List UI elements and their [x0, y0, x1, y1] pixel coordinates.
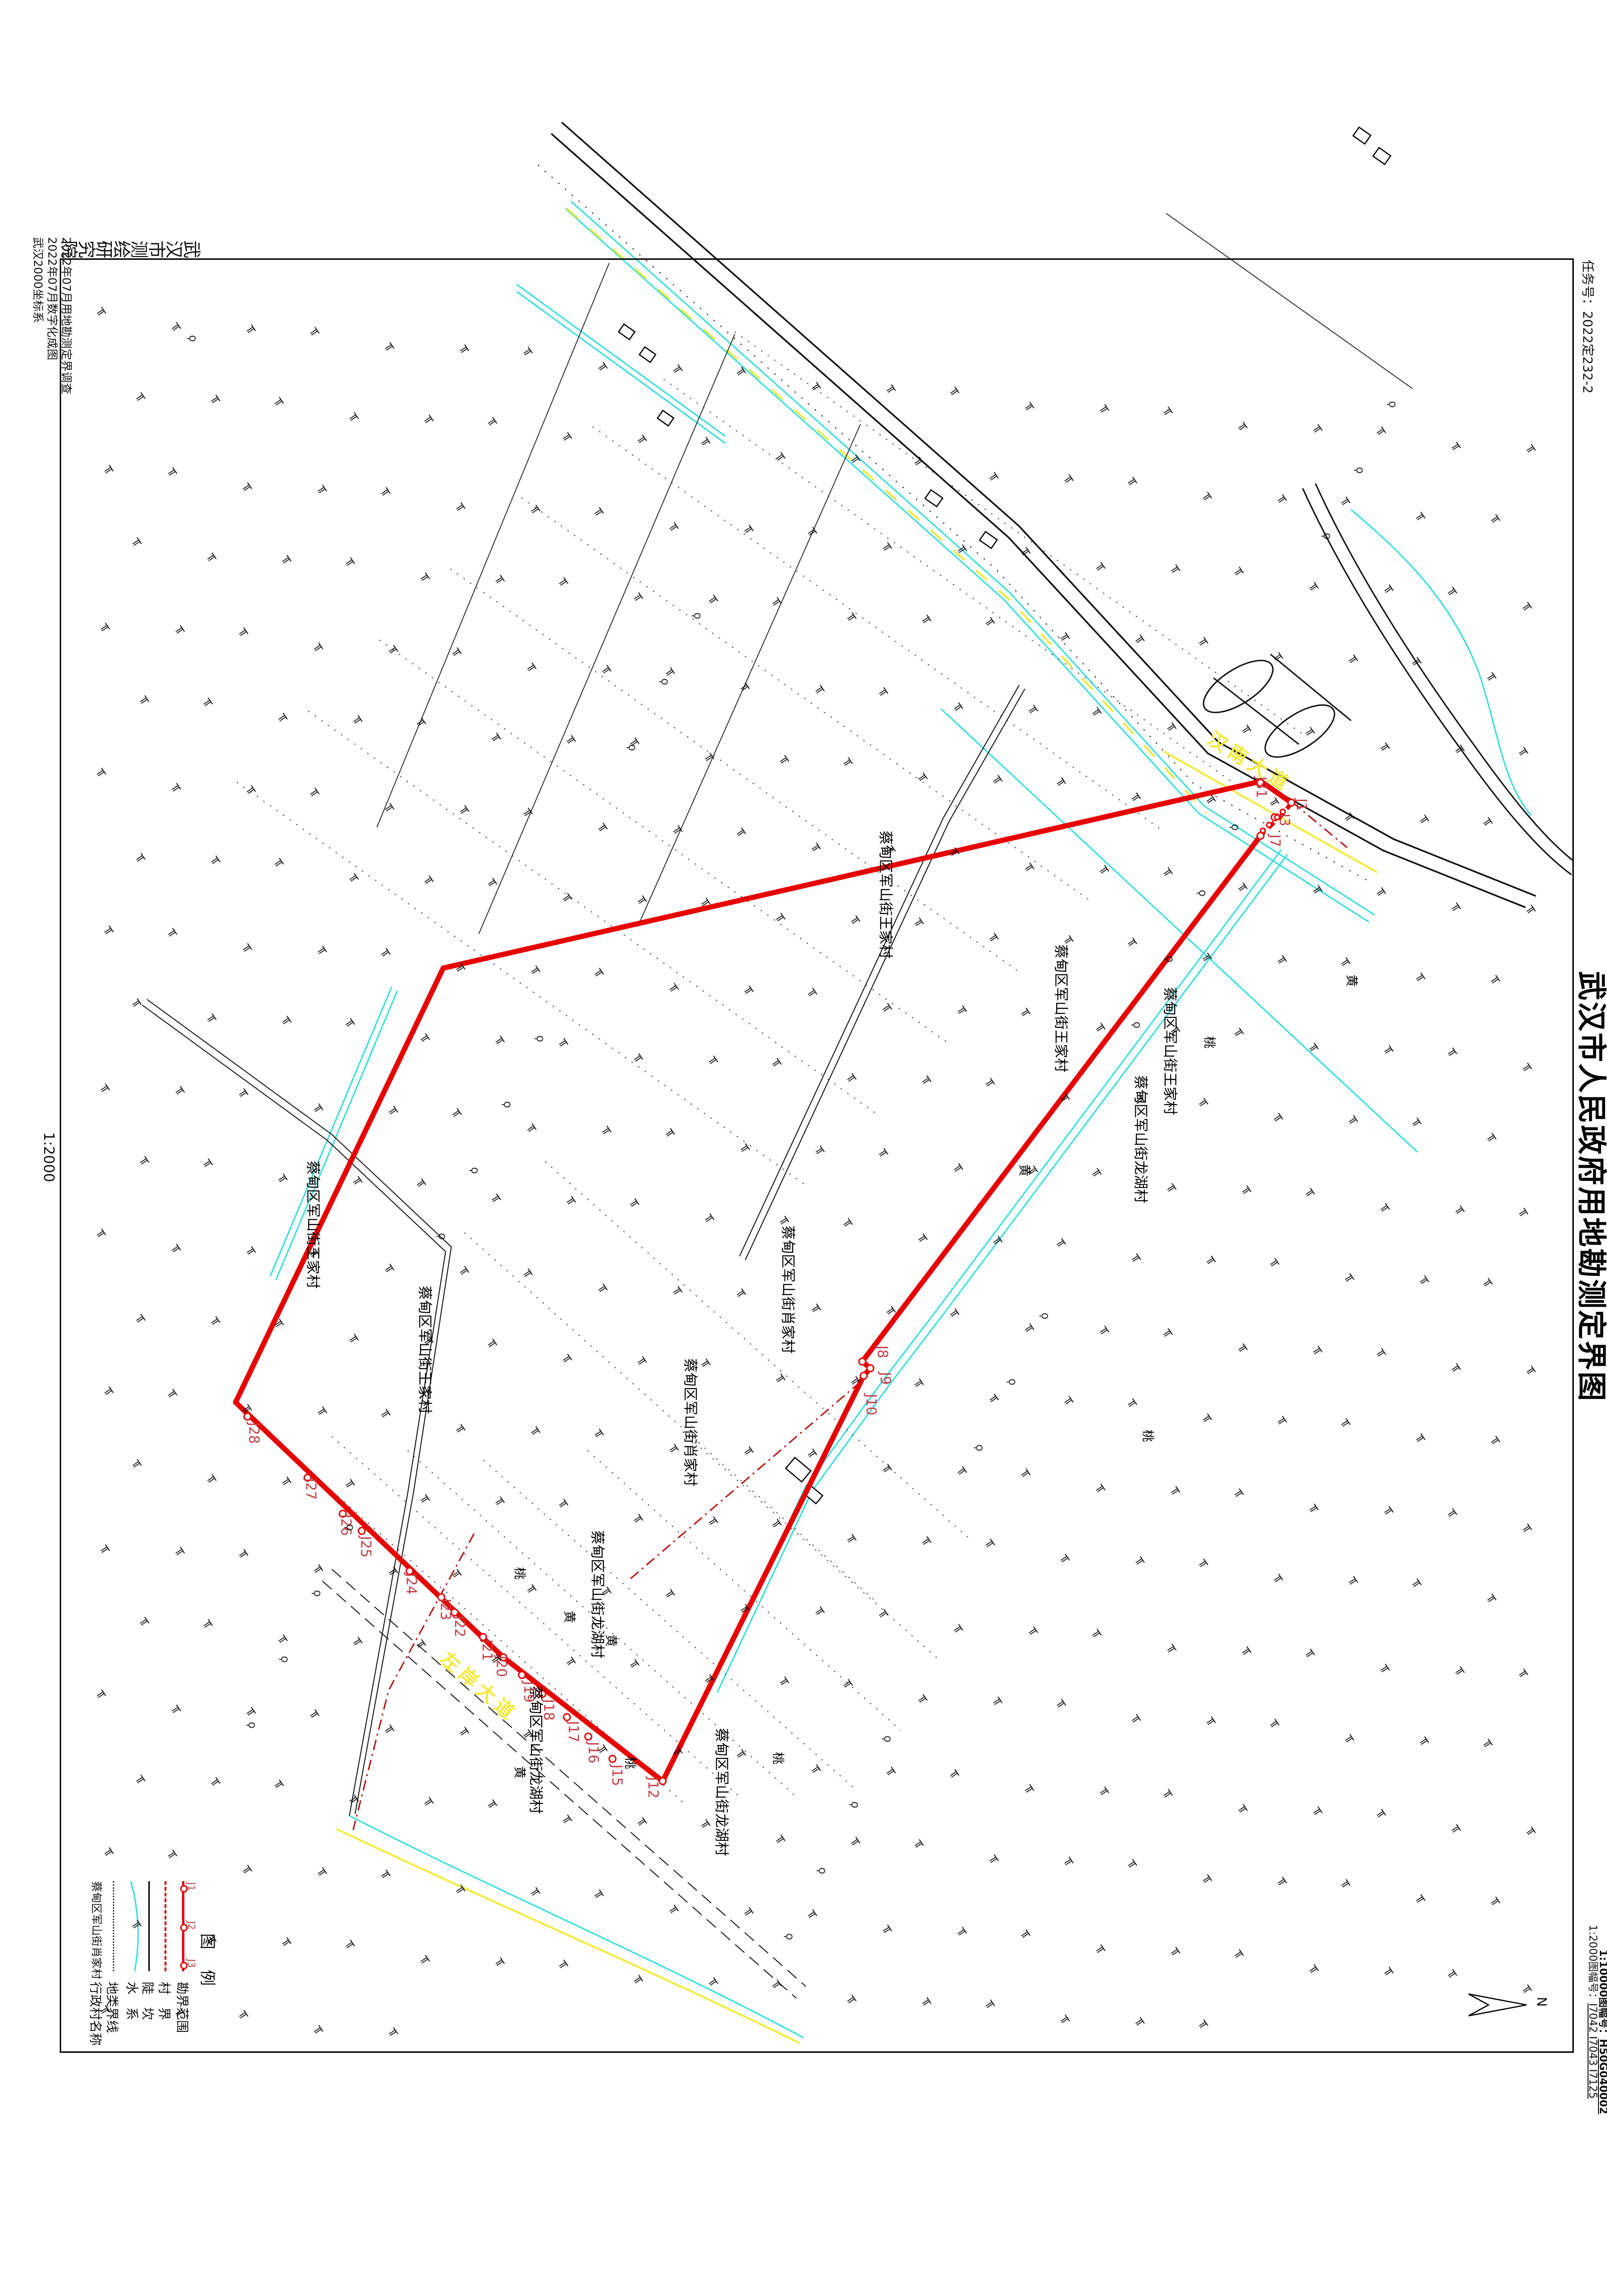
margin-note-3: 武汉2000坐标系 — [32, 237, 44, 323]
boundary-vertex-label: J18 — [542, 1699, 556, 1720]
village-name-label: 蔡甸区军山街王家村 — [417, 1286, 431, 1414]
legend-item-scarp: 陡 坎 — [143, 1815, 160, 2033]
boundary-vertex-label: J3 — [1278, 814, 1291, 826]
grass-symbol: ϙ — [783, 1933, 796, 1940]
grass-symbol: ϙ — [344, 1524, 357, 1531]
page-title: 武汉市人民政府用地勘测定界图 — [1577, 971, 1606, 1402]
grass-symbol: ϙ — [1353, 467, 1367, 474]
crop-type-char: 桃 — [622, 1756, 640, 1769]
sheet-number-10000-label: 1:10000图幅号： — [1597, 1949, 1607, 2039]
village-name-label: 蔡甸区军山街龙湖村 — [590, 1530, 604, 1658]
grass-symbol: ϙ — [468, 1167, 482, 1174]
crop-type-char: 黄 — [512, 1766, 530, 1778]
grass-symbol: ϙ — [1321, 533, 1334, 540]
village-name-label: 蔡甸区军山街龙湖村 — [528, 1686, 542, 1814]
grass-symbol: ϙ — [1039, 1313, 1052, 1320]
crop-type-char: 黄 — [603, 1634, 621, 1647]
grass-symbol: ϙ — [311, 1590, 324, 1597]
boundary-vertex-label: J23 — [438, 1599, 452, 1620]
grass-symbol: ϙ — [1006, 1379, 1019, 1386]
legend-item-village-name: 蔡甸区军山街肖家村 行政村名称 — [91, 1815, 108, 2033]
grass-symbol: ϙ — [973, 1445, 986, 1452]
sheet-number-10000-value: H50G040002 — [1597, 2039, 1607, 2114]
boundary-vertex-label: J31 — [1254, 777, 1268, 798]
legend-item-boundary: J1 J2 J3 勘界范围 — [177, 1815, 194, 2033]
boundary-vertex-label: J22 — [453, 1616, 466, 1637]
village-name-label: 蔡甸区军山街王家村 — [1162, 987, 1177, 1115]
village-name-label: 蔡甸区军山街肖家村 — [683, 1358, 697, 1486]
village-name-label: 蔡甸区军山街龙湖村 — [714, 1728, 728, 1856]
crop-type-char: 黄 — [1344, 974, 1361, 987]
grass-symbol: ϙ — [881, 1736, 895, 1743]
grass-symbol: ϙ — [436, 1233, 449, 1240]
legend-water-label: 水 系 — [124, 1982, 142, 2020]
institute-name-char: 武 — [180, 240, 206, 258]
grass-symbol: ϙ — [278, 1656, 292, 1663]
grass-symbol: ϙ — [658, 678, 672, 686]
grass-symbol: ϙ — [626, 744, 639, 751]
crop-type-char: 黄 — [1017, 1164, 1034, 1176]
survey-map-sheet: 院究研绘测市汉武 2022年07月用地勘测定界调查 2022年07月数字化成图 … — [0, 0, 1607, 2296]
grass-symbol: ϙ — [691, 613, 704, 620]
grass-symbol: ϙ — [1131, 1022, 1144, 1029]
sheet-number-10000: 1:10000图幅号：H50G040002 — [1598, 1949, 1607, 2114]
boundary-vertex-label: J8 — [876, 1345, 889, 1358]
boundary-vertex-label: J9 — [878, 1372, 892, 1385]
legend-village-name-sample: 蔡甸区军山街肖家村 — [90, 1881, 106, 1979]
village-name-label: 蔡甸区军山街王家村 — [1053, 944, 1068, 1072]
grass-symbol: ϙ — [816, 1867, 829, 1875]
grass-symbol: ϙ — [534, 1035, 547, 1043]
grass-symbol: ϙ — [186, 335, 200, 342]
grass-symbol: ϙ — [849, 1802, 862, 1809]
boundary-vertex-label: J10 — [864, 1394, 878, 1415]
legend-boundary-sample: J1 J2 J3 — [177, 1881, 194, 1971]
grass-symbol: ϙ — [1386, 401, 1399, 408]
boundary-vertex-label: J27 — [304, 1478, 318, 1500]
grass-symbol: ϙ — [1229, 824, 1242, 831]
north-label: N — [1535, 1997, 1548, 2007]
boundary-vertex-label: J28 — [247, 1422, 261, 1444]
margin-note-1: 2022年07月用地勘测定界调查 — [61, 237, 72, 394]
institute-name: 院究研绘测市汉武 — [62, 236, 202, 258]
village-name-label: 蔡甸区军山街肖家村 — [780, 1226, 794, 1354]
legend-item-village-border: 村 界 — [159, 1815, 176, 2033]
sheet-number-2000: 1:2000图幅号：I7042 I7043 I7125 — [1587, 1925, 1598, 2099]
boundary-vertex-label: J24 — [404, 1573, 418, 1594]
map-scale: 1:2000 — [41, 1132, 55, 1182]
boundary-vertex-label: J7 — [1268, 834, 1282, 847]
margin-note-2: 2022年07月数字化成图 — [46, 237, 58, 360]
grass-symbol: ϙ — [1163, 956, 1177, 963]
boundary-vertex-label: J17 — [566, 1721, 580, 1742]
grass-symbol: ϙ — [1196, 890, 1209, 897]
boundary-vertex-label: J16 — [586, 1742, 600, 1763]
boundary-vertex-label: J19 — [522, 1681, 536, 1702]
crop-type-char: 黄 — [562, 1610, 579, 1623]
village-name-label: 蔡甸区军山街王家村 — [305, 1161, 320, 1289]
task-number: 任务号：2022定232-2 — [1581, 260, 1594, 393]
crop-type-char: 桃 — [512, 1567, 530, 1579]
grass-symbol: ϙ — [246, 1722, 259, 1729]
boundary-vertex-label: J12 — [646, 1777, 660, 1798]
crop-type-char: 桃 — [1202, 1036, 1219, 1048]
boundary-vertex-label: J1 — [1295, 798, 1308, 811]
crop-type-char: 桃 — [1140, 1429, 1158, 1442]
grass-symbol: ϙ — [501, 1101, 514, 1108]
boundary-vertex-label: J25 — [359, 1536, 373, 1557]
crop-type-char: 桃 — [770, 1752, 788, 1764]
